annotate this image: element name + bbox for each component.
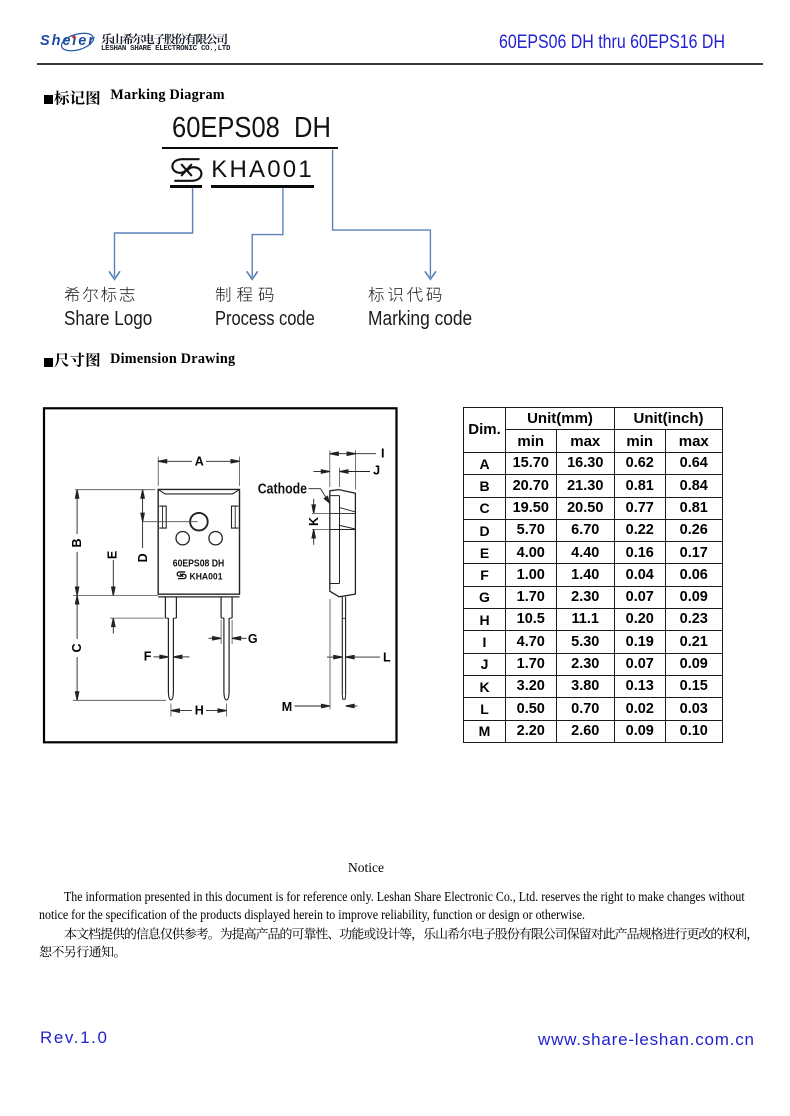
svg-text:A: A — [195, 455, 204, 469]
svg-text:G: G — [248, 632, 258, 646]
svg-text:M: M — [282, 700, 292, 714]
svg-text:B: B — [70, 538, 84, 547]
svg-text:H: H — [195, 703, 204, 717]
svg-text:60EPS08 DH: 60EPS08 DH — [173, 558, 225, 570]
svg-text:D: D — [136, 553, 150, 562]
svg-text:KHA001: KHA001 — [190, 572, 224, 583]
svg-text:K: K — [307, 517, 321, 526]
svg-text:I: I — [381, 447, 384, 461]
svg-text:C: C — [70, 643, 84, 652]
svg-text:Cathode: Cathode — [258, 482, 307, 498]
svg-text:J: J — [373, 464, 380, 478]
svg-text:F: F — [144, 650, 152, 664]
svg-text:L: L — [383, 651, 391, 665]
svg-text:E: E — [105, 551, 119, 559]
